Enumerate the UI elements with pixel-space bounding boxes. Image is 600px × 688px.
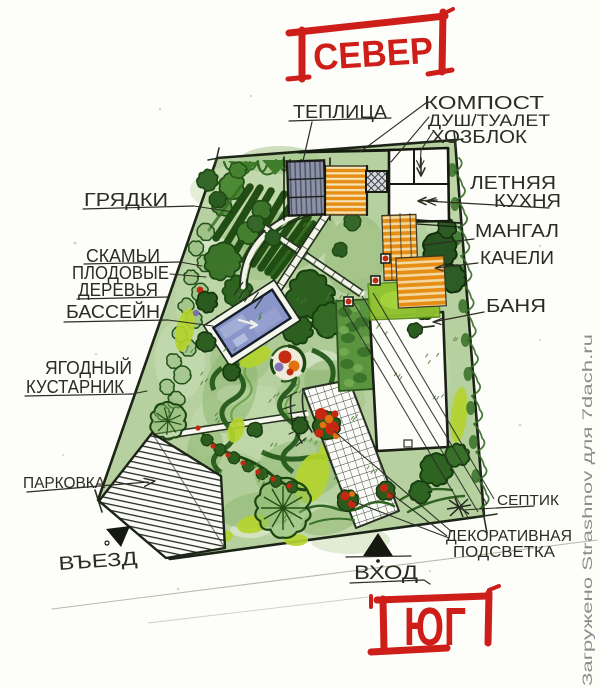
svg-text:ЛЕТНЯЯ: ЛЕТНЯЯ xyxy=(470,173,556,193)
svg-text:ХОЗБЛОК: ХОЗБЛОК xyxy=(431,127,528,147)
svg-text:КОМПОСТ: КОМПОСТ xyxy=(424,93,544,113)
svg-text:Загружено Strashnov для 7dach.: Загружено Strashnov для 7dach.ru xyxy=(580,334,595,686)
svg-text:КУХНЯ: КУХНЯ xyxy=(494,191,561,211)
svg-text:СЕВЕР: СЕВЕР xyxy=(312,30,434,78)
svg-text:МАНГАЛ: МАНГАЛ xyxy=(475,221,559,241)
svg-text:КАЧЕЛИ: КАЧЕЛИ xyxy=(480,248,554,268)
svg-text:БАССЕЙН: БАССЕЙН xyxy=(66,301,160,322)
svg-text:ЮГ: ЮГ xyxy=(404,597,466,657)
svg-text:ПОДСВЕТКА: ПОДСВЕТКА xyxy=(453,544,556,561)
svg-text:ЯГОДНЫЙ: ЯГОДНЫЙ xyxy=(45,357,132,378)
svg-text:ДЕКОРАТИВНАЯ: ДЕКОРАТИВНАЯ xyxy=(446,528,572,545)
svg-text:БАНЯ: БАНЯ xyxy=(486,296,546,316)
